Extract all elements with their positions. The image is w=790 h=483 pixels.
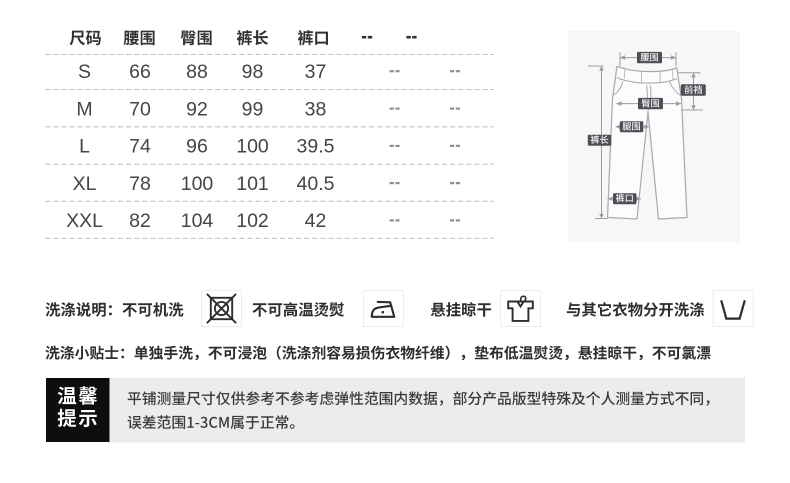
svg-text:40.5: 40.5 bbox=[297, 173, 335, 195]
svg-text:42: 42 bbox=[305, 210, 327, 232]
svg-text:XL: XL bbox=[73, 173, 97, 195]
svg-text:XXL: XXL bbox=[66, 210, 103, 232]
svg-text:74: 74 bbox=[129, 136, 151, 158]
svg-text:37: 37 bbox=[305, 61, 327, 83]
svg-text:104: 104 bbox=[181, 210, 214, 232]
svg-text:100: 100 bbox=[181, 173, 214, 195]
svg-text:99: 99 bbox=[242, 98, 264, 120]
svg-text:39.5: 39.5 bbox=[297, 136, 335, 158]
svg-text:98: 98 bbox=[242, 61, 264, 83]
svg-text:70: 70 bbox=[129, 98, 151, 120]
svg-text:102: 102 bbox=[236, 210, 269, 232]
svg-text:96: 96 bbox=[186, 136, 208, 158]
svg-text:100: 100 bbox=[236, 136, 269, 158]
svg-text:88: 88 bbox=[186, 61, 208, 83]
svg-text:82: 82 bbox=[129, 210, 151, 232]
svg-text:M: M bbox=[76, 98, 92, 120]
svg-text:78: 78 bbox=[129, 173, 151, 195]
svg-text:38: 38 bbox=[305, 98, 327, 120]
svg-text:92: 92 bbox=[186, 98, 208, 120]
svg-text:66: 66 bbox=[129, 61, 151, 83]
svg-text:101: 101 bbox=[236, 173, 269, 195]
svg-text:S: S bbox=[78, 61, 91, 83]
svg-text:L: L bbox=[79, 136, 90, 158]
